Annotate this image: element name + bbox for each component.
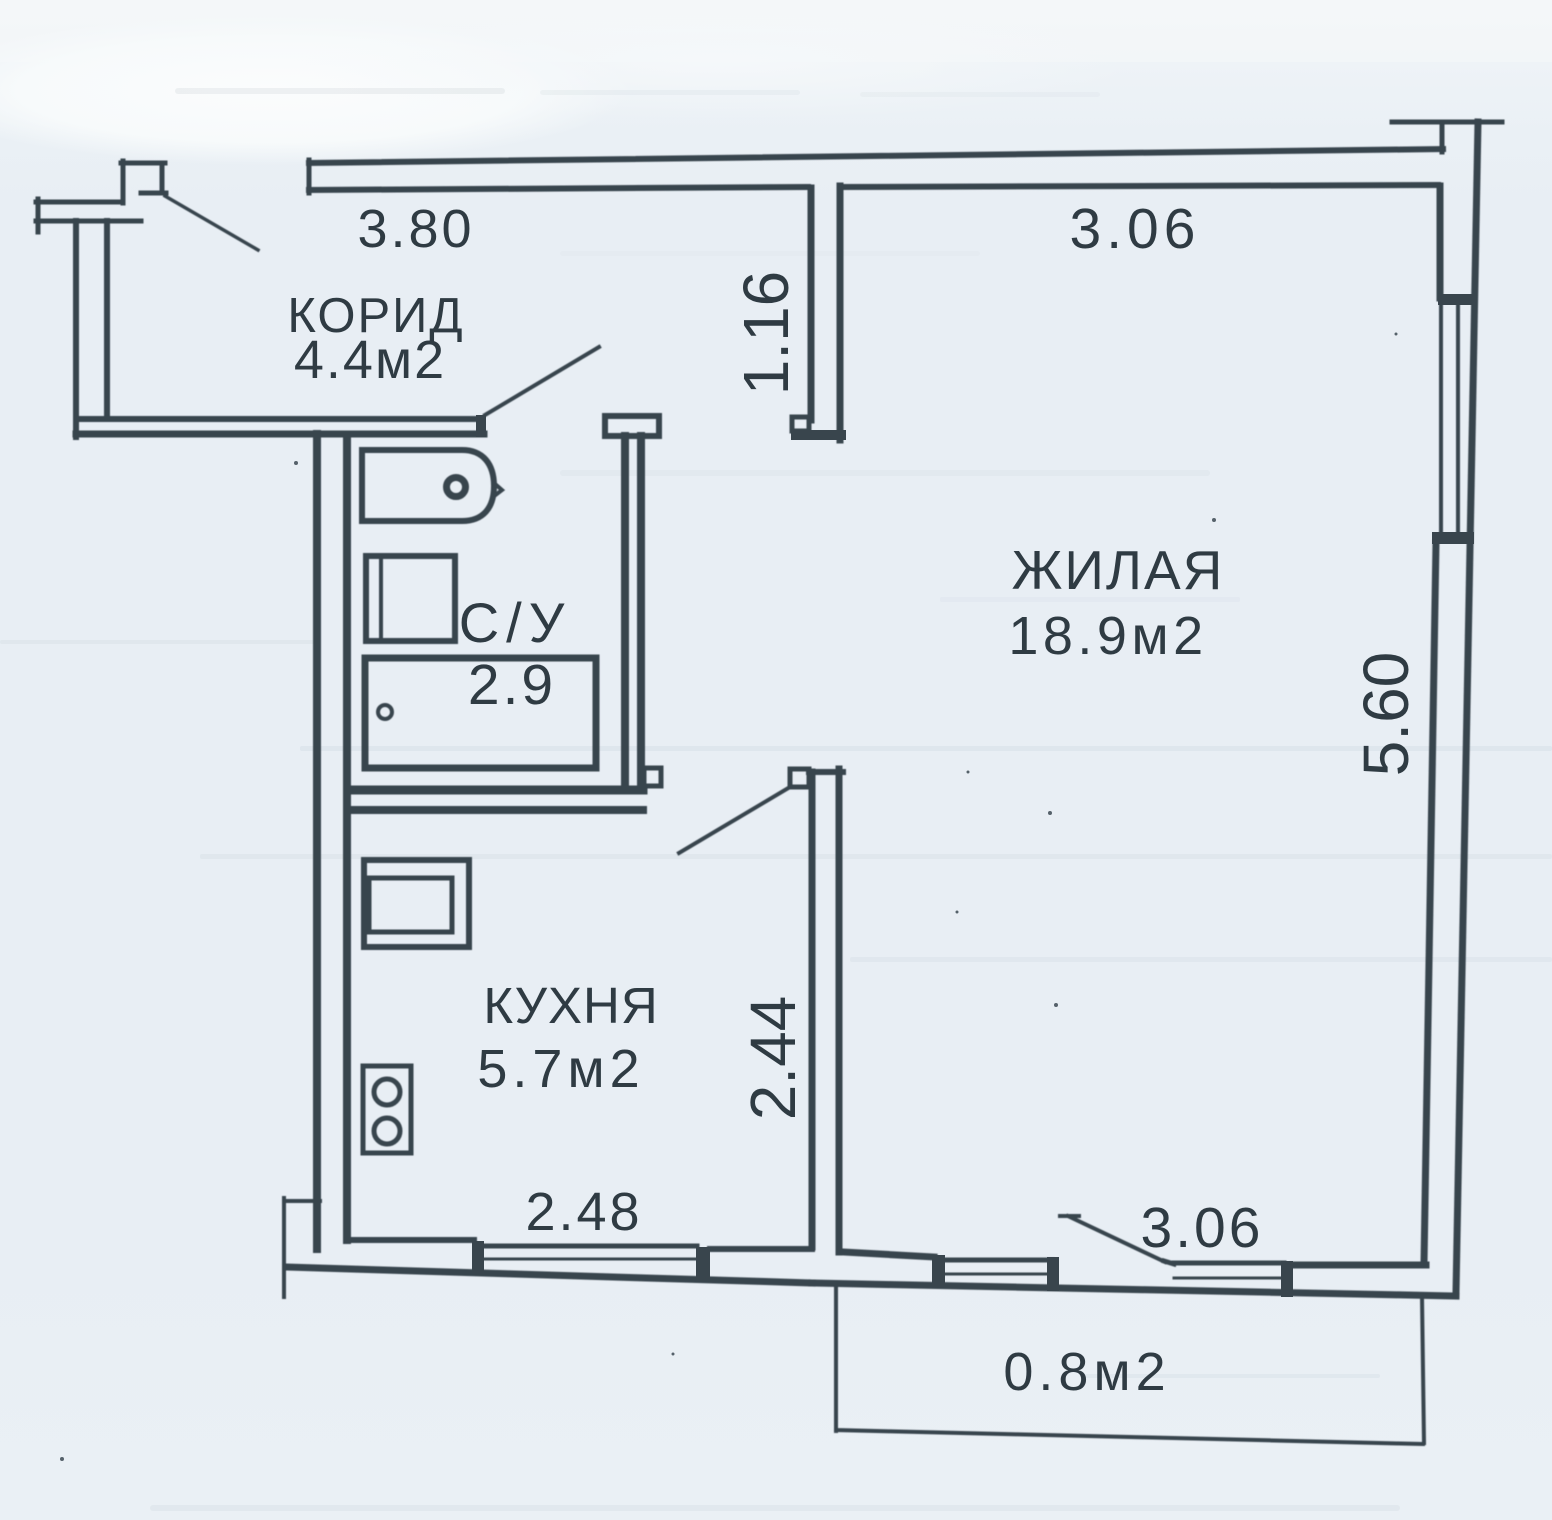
svg-text:1.16: 1.16 <box>730 271 802 396</box>
svg-text:4.4м2: 4.4м2 <box>294 330 446 390</box>
svg-text:0.8м2: 0.8м2 <box>1003 1342 1170 1402</box>
svg-text:ЖИЛАЯ: ЖИЛАЯ <box>1012 539 1225 601</box>
svg-text:КУХНЯ: КУХНЯ <box>483 977 658 1034</box>
svg-text:3.06: 3.06 <box>1070 197 1201 261</box>
svg-text:3.06: 3.06 <box>1141 1196 1264 1260</box>
svg-text:2.44: 2.44 <box>737 996 809 1121</box>
svg-text:5.7м2: 5.7м2 <box>477 1039 644 1099</box>
svg-text:3.80: 3.80 <box>357 199 474 259</box>
svg-text:2.9: 2.9 <box>468 653 556 717</box>
svg-text:5.60: 5.60 <box>1350 652 1422 777</box>
svg-text:18.9м2: 18.9м2 <box>1008 606 1207 666</box>
svg-text:С/У: С/У <box>459 591 572 654</box>
svg-text:2.48: 2.48 <box>525 1182 642 1242</box>
